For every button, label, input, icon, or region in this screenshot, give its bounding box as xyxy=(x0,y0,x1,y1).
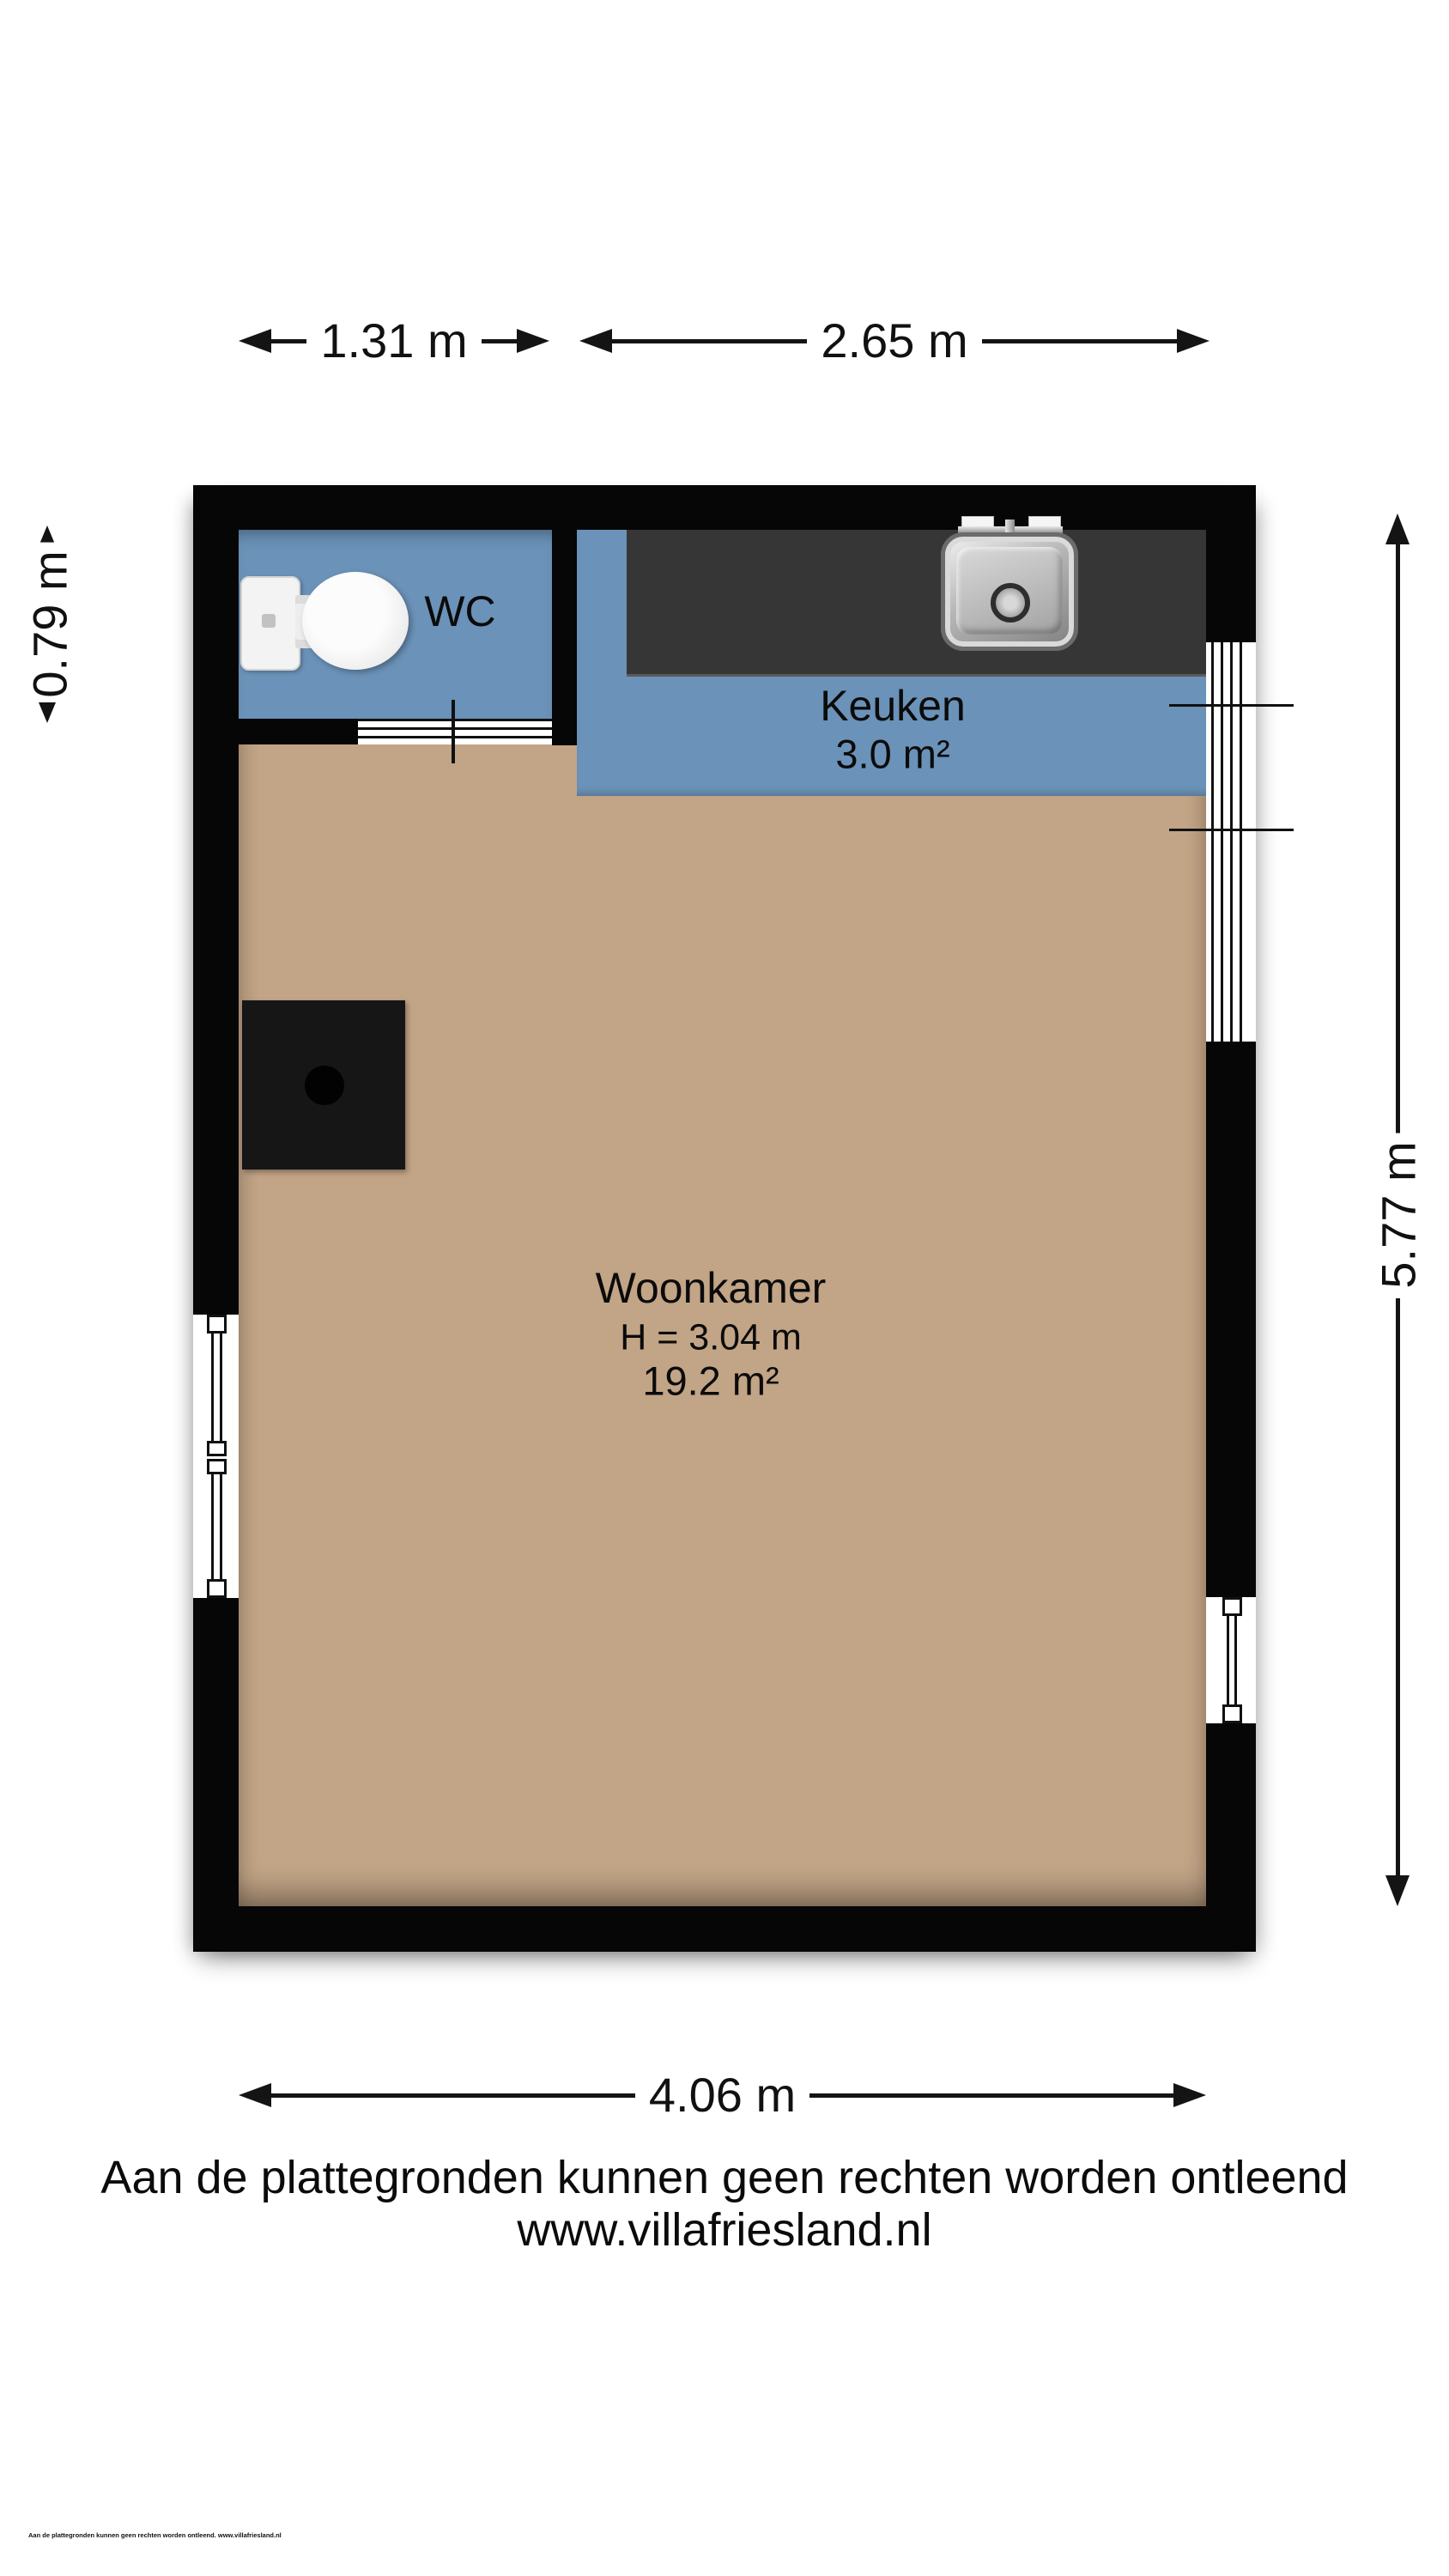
dimension-line xyxy=(982,339,1177,343)
toilet-flush-button xyxy=(262,614,276,628)
arrow-up-icon xyxy=(1385,513,1410,544)
sliding-door-symbol xyxy=(358,719,552,744)
dimension-top-kitchen-width: 2.65 m xyxy=(579,319,1210,363)
arrow-down-icon xyxy=(39,702,56,723)
window-pane-line xyxy=(220,1474,222,1579)
arrow-left-icon xyxy=(579,329,612,353)
disclaimer-text: Aan de plattegronden kunnen geen rechten… xyxy=(0,2151,1449,2204)
dimension-label: 2.65 m xyxy=(807,319,981,363)
door-post-line xyxy=(452,700,455,763)
window-pane-line xyxy=(211,1334,214,1441)
room-area-kitchen: 3.0 m² xyxy=(835,731,949,778)
window-pane-line xyxy=(1230,642,1233,1042)
dimension-line xyxy=(271,2093,635,2098)
toilet-bowl xyxy=(302,572,409,670)
window-cap xyxy=(1222,1704,1242,1723)
window-opening xyxy=(193,1315,239,1598)
dimension-line xyxy=(612,339,807,343)
window-cap xyxy=(207,1441,227,1456)
window-tick-line xyxy=(1169,704,1294,707)
dimension-label: 5.77 m xyxy=(1371,1133,1427,1297)
window-pane-line xyxy=(1227,1616,1229,1704)
window-pane-line xyxy=(211,1474,214,1579)
dimension-label: 0.79 m xyxy=(22,542,78,706)
kitchen-counter xyxy=(627,530,1206,677)
window-pane-line xyxy=(1240,642,1242,1042)
wall-wc-bottom xyxy=(239,719,358,744)
dimension-line xyxy=(482,339,517,343)
window-cap xyxy=(207,1315,227,1334)
dimension-bottom-width: 4.06 m xyxy=(239,2073,1206,2117)
window-cap xyxy=(207,1459,227,1474)
window-cap xyxy=(207,1579,227,1598)
kitchen-sink-icon xyxy=(941,516,1087,653)
arrow-right-icon xyxy=(1173,2083,1206,2107)
wall-wc-kitchen-divider xyxy=(552,530,577,745)
sink-drain xyxy=(991,583,1030,623)
window-pane-line xyxy=(220,1334,222,1441)
dimension-line xyxy=(271,339,306,343)
room-area-living: 19.2 m² xyxy=(642,1358,779,1405)
arrow-right-icon xyxy=(1177,329,1210,353)
arrow-down-icon xyxy=(1385,1875,1410,1906)
room-ceiling-height-living: H = 3.04 m xyxy=(620,1317,802,1359)
window-pane-line xyxy=(1234,1616,1237,1704)
dimension-top-wc-width: 1.31 m xyxy=(239,319,549,363)
room-label-wc: WC xyxy=(424,586,495,636)
arrow-left-icon xyxy=(239,329,271,353)
window-pane-line xyxy=(1211,642,1214,1042)
window-tick-line xyxy=(1169,829,1294,831)
website-text: www.villafriesland.nl xyxy=(0,2203,1449,2257)
dimension-line xyxy=(1396,541,1400,1133)
arrow-left-icon xyxy=(239,2083,271,2107)
floor-plan xyxy=(193,485,1256,1952)
room-label-living: Woonkamer xyxy=(596,1263,827,1313)
window-pane-line xyxy=(1221,642,1223,1042)
stove-flue-circle xyxy=(305,1066,344,1105)
stove-square-icon xyxy=(242,1000,405,1170)
dimension-label: 4.06 m xyxy=(635,2073,809,2117)
arrow-right-icon xyxy=(517,329,549,353)
window-cap xyxy=(1222,1597,1242,1616)
floor-plan-page: 1.31 m 2.65 m 0.79 m 5.77 m xyxy=(0,0,1449,2576)
fine-print-text: Aan de plattegronden kunnen geen rechten… xyxy=(28,2531,282,2539)
room-label-kitchen: Keuken xyxy=(820,681,966,731)
dimension-label: 1.31 m xyxy=(306,319,481,363)
dimension-line xyxy=(809,2093,1173,2098)
dimension-line xyxy=(1396,1298,1400,1879)
